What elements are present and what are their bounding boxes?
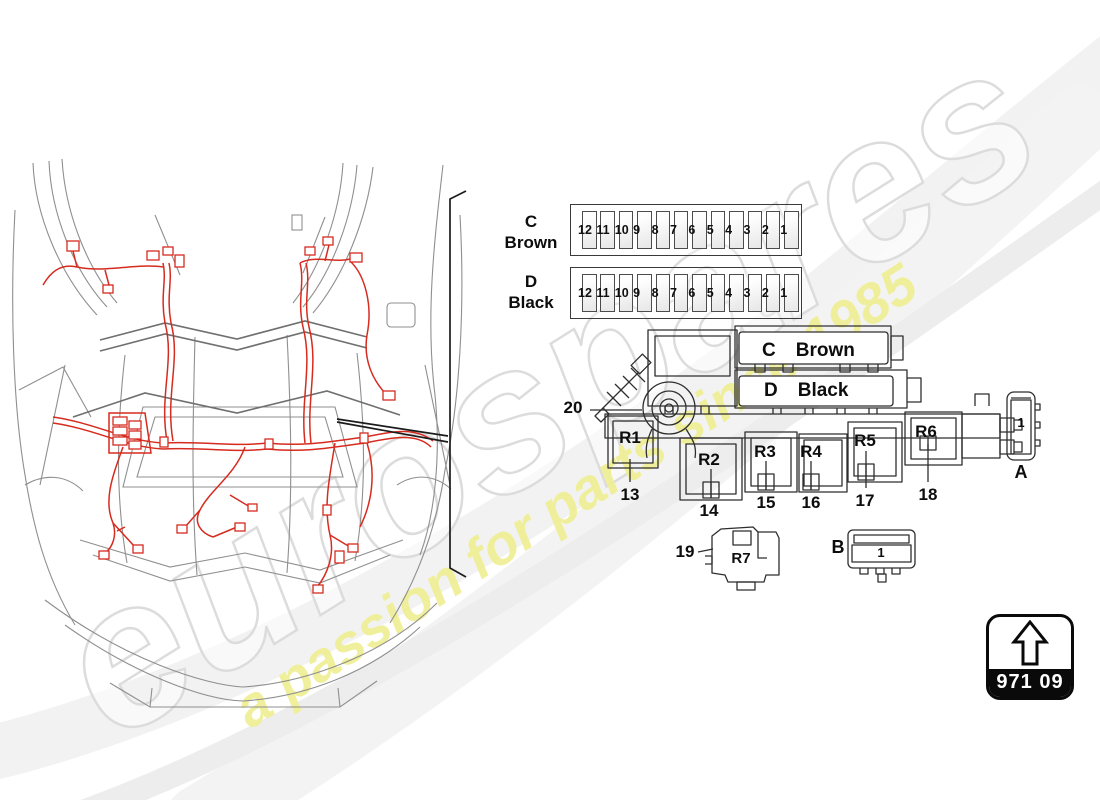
fuse-number: 3 (744, 286, 751, 300)
fuse-cell: 1 (784, 274, 799, 312)
strip-c-letter: C (498, 211, 564, 232)
slot-d-name: Black (798, 380, 849, 402)
detail-bracket (337, 191, 466, 577)
fuse-cell: 12 (582, 211, 597, 249)
fuse-number: 6 (688, 286, 695, 300)
parts-diagram-page: eurospares a passion for parts since 198… (0, 0, 1100, 800)
callout-19: 19 (667, 543, 703, 560)
fuse-number: 10 (615, 223, 629, 237)
strip-c-color: Brown (498, 232, 564, 253)
fuse-number: 1 (780, 286, 787, 300)
fuse-number: 8 (652, 223, 659, 237)
strip-d-color: Black (498, 292, 564, 313)
relay-label-r5: R5 (847, 432, 883, 449)
fuse-cell: 4 (729, 274, 744, 312)
fuse-cell: 8 (656, 211, 671, 249)
fuse-cell: 1 (784, 211, 799, 249)
fuse-number: 9 (633, 286, 640, 300)
fuse-number: 7 (670, 223, 677, 237)
fuse-cell: 4 (729, 211, 744, 249)
fuse-number: 4 (725, 286, 732, 300)
connector-a-label: A (1003, 463, 1039, 481)
relay-label-r4: R4 (793, 443, 829, 460)
fuse-cell: 10 (619, 211, 634, 249)
fuse-cell: 7 (674, 211, 689, 249)
fuse-cell: 9 (637, 274, 652, 312)
fuse-cell: 9 (637, 211, 652, 249)
fusebox-slot-c-label: C Brown (762, 340, 855, 362)
fusebox-slot-d-label: D Black (764, 380, 848, 402)
fuse-number: 1 (780, 223, 787, 237)
fuse-number: 11 (596, 286, 609, 300)
car-harness-illustration (5, 155, 475, 715)
connector-a-cavity: 1 (1009, 416, 1033, 429)
relay-label-r7: R7 (723, 551, 759, 566)
relay-label-r6: R6 (908, 423, 944, 440)
slot-c-name: Brown (796, 340, 855, 362)
relay-label-r2: R2 (691, 451, 727, 468)
strip-d-letter: D (498, 271, 564, 292)
fuse-cell: 8 (656, 274, 671, 312)
strip-c-label: C Brown (498, 211, 564, 253)
fuse-number: 8 (652, 286, 659, 300)
fuse-cell: 3 (748, 211, 763, 249)
fuse-number: 3 (744, 223, 751, 237)
relay-label-r3: R3 (747, 443, 783, 460)
fuse-number: 10 (615, 286, 629, 300)
part-direction-tag: 971 09 (986, 614, 1074, 700)
fuse-cell: 2 (766, 211, 781, 249)
callout-13: 13 (612, 486, 648, 503)
callout-20: 20 (555, 399, 591, 416)
strip-d-label: D Black (498, 271, 564, 313)
slot-c-letter: C (762, 340, 776, 362)
fuse-number: 7 (670, 286, 677, 300)
fuse-number: 6 (688, 223, 695, 237)
fuse-number: 9 (633, 223, 640, 237)
fuse-cell: 12 (582, 274, 597, 312)
fuse-cell: 5 (711, 211, 726, 249)
connector-b-cavity: 1 (869, 546, 893, 559)
callout-15: 15 (748, 494, 784, 511)
part-tag-arrow-area (989, 617, 1071, 669)
fuse-cell: 7 (674, 274, 689, 312)
fuse-cell: 11 (600, 274, 615, 312)
fuse-number: 12 (578, 286, 592, 300)
fuse-number: 5 (707, 223, 714, 237)
cowl-lines (73, 321, 400, 417)
fuse-cell: 2 (766, 274, 781, 312)
connector-b-label: B (820, 538, 856, 556)
callout-17: 17 (847, 492, 883, 509)
fuse-cell: 11 (600, 211, 615, 249)
fuse-cell: 6 (692, 211, 707, 249)
fuse-strip-c: 12 11 10 9 8 7 6 (570, 204, 802, 256)
callout-18: 18 (910, 486, 946, 503)
fuse-cell: 3 (748, 274, 763, 312)
part-code: 971 09 (989, 669, 1071, 697)
fuse-cell: 5 (711, 274, 726, 312)
wiring-harness (43, 237, 433, 593)
fuse-number: 11 (596, 223, 609, 237)
fuse-number: 2 (762, 286, 769, 300)
fuse-number: 4 (725, 223, 732, 237)
fuse-number: 5 (707, 286, 714, 300)
fuse-number: 12 (578, 223, 592, 237)
fuse-cell: 10 (619, 274, 634, 312)
slot-d-letter: D (764, 380, 778, 402)
callout-16: 16 (793, 494, 829, 511)
up-arrow-icon (1010, 620, 1050, 666)
callout-14: 14 (691, 502, 727, 519)
relay-label-r1: R1 (612, 429, 648, 446)
fuse-strip-d: 12 11 10 9 8 7 6 (570, 267, 802, 319)
fuse-number: 2 (762, 223, 769, 237)
fuse-cell: 6 (692, 274, 707, 312)
relay-bay-r3 (745, 432, 797, 492)
